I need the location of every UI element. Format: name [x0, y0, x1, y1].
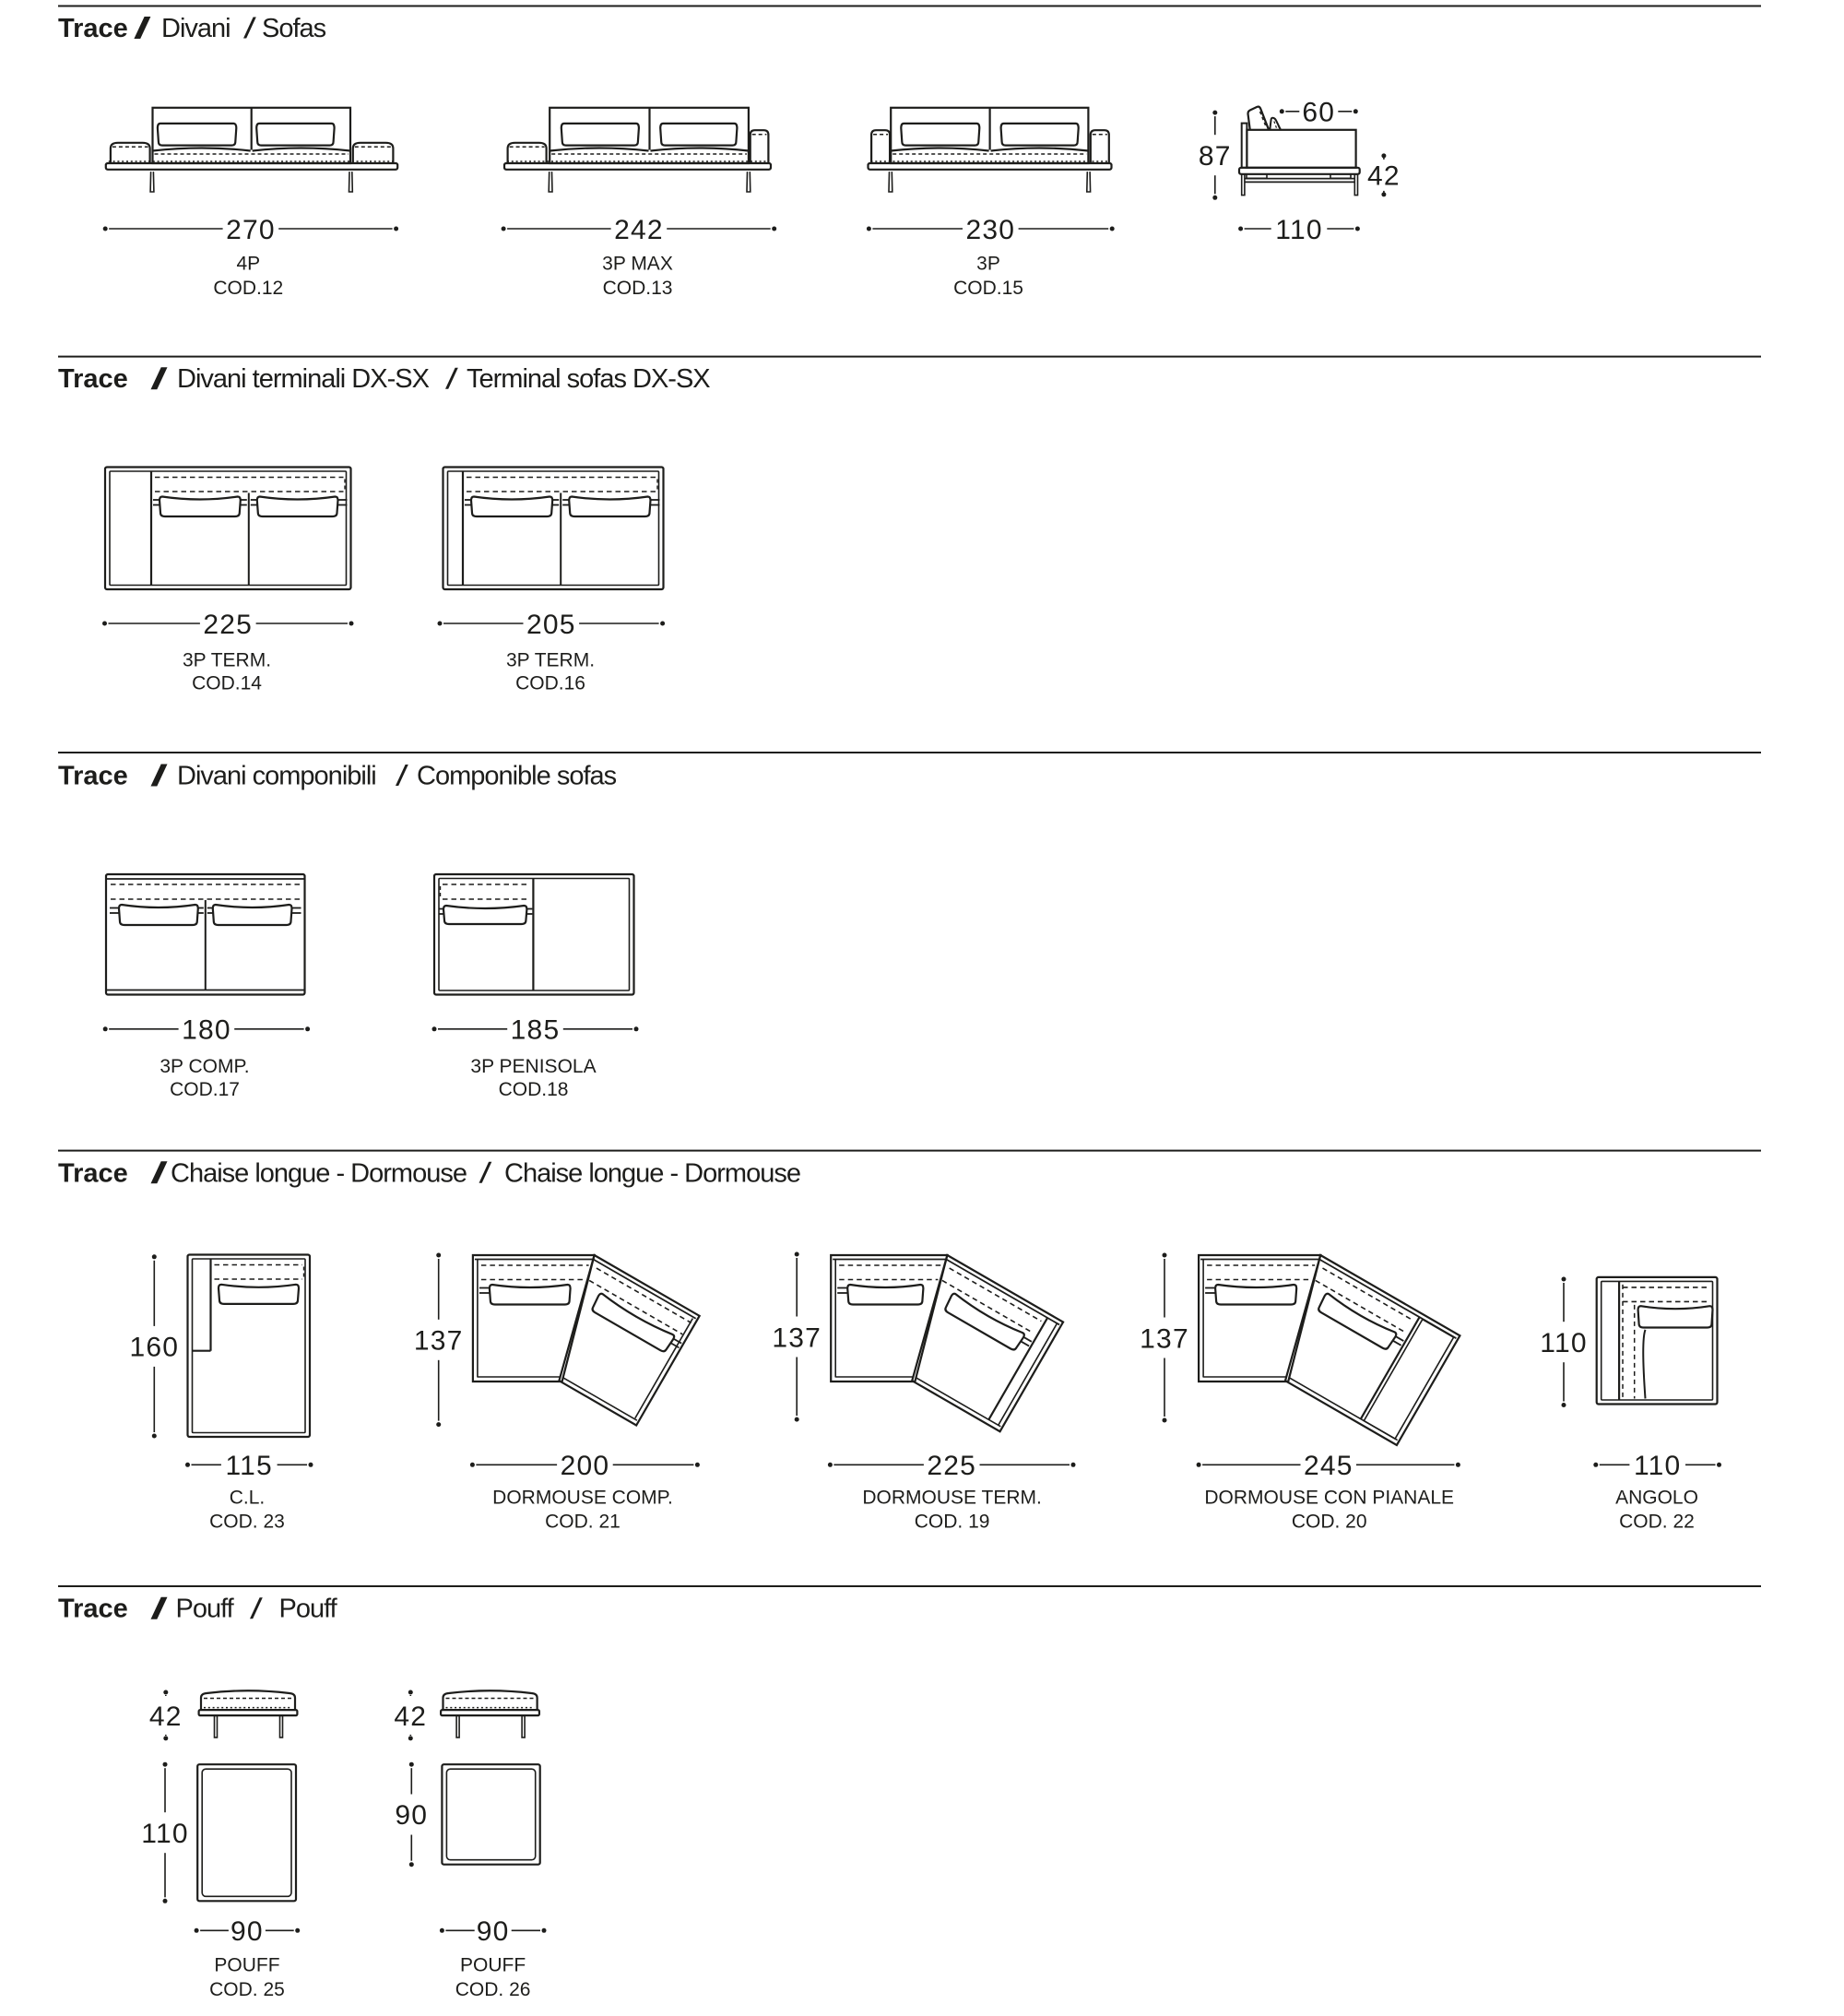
svg-text:110: 110 — [141, 1819, 188, 1849]
svg-text:Chaise longue - Dormouse: Chaise longue - Dormouse — [504, 1158, 800, 1188]
svg-text:Trace: Trace — [58, 1158, 128, 1188]
svg-text:Sofas: Sofas — [262, 14, 326, 43]
svg-text:COD.12: COD.12 — [213, 278, 283, 299]
svg-text:137: 137 — [772, 1322, 822, 1353]
svg-text:Divani componibili: Divani componibili — [177, 762, 376, 791]
svg-text:COD.13: COD.13 — [603, 278, 673, 299]
svg-text:42: 42 — [1367, 161, 1401, 192]
svg-text:200: 200 — [561, 1451, 610, 1481]
svg-text:230: 230 — [965, 215, 1015, 245]
svg-text:Trace: Trace — [58, 364, 128, 394]
svg-text:225: 225 — [203, 610, 253, 640]
svg-text:POUFF: POUFF — [214, 1955, 279, 1976]
svg-text:COD.18: COD.18 — [499, 1079, 569, 1100]
svg-text:COD. 21: COD. 21 — [545, 1512, 621, 1533]
svg-text:ANGOLO: ANGOLO — [1615, 1488, 1698, 1509]
svg-text:Chaise longue - Dormouse: Chaise longue - Dormouse — [171, 1158, 467, 1188]
svg-text:POUFF: POUFF — [460, 1955, 526, 1976]
svg-text:COD.14: COD.14 — [192, 673, 262, 694]
svg-text:180: 180 — [182, 1015, 231, 1046]
svg-text:COD.17: COD.17 — [170, 1079, 240, 1100]
svg-text:270: 270 — [226, 215, 276, 245]
svg-text:Terminal sofas DX-SX: Terminal sofas DX-SX — [467, 364, 710, 394]
svg-text:4P: 4P — [236, 253, 260, 274]
svg-text:Trace: Trace — [58, 14, 128, 43]
svg-text:3P MAX: 3P MAX — [602, 253, 673, 274]
svg-text:COD. 25: COD. 25 — [209, 1979, 285, 2000]
svg-text:COD. 22: COD. 22 — [1619, 1512, 1695, 1533]
svg-text:Pouff: Pouff — [279, 1595, 338, 1624]
svg-text:Componible sofas: Componible sofas — [417, 762, 617, 791]
svg-text:110: 110 — [1275, 215, 1322, 245]
svg-text:3P: 3P — [976, 253, 1000, 274]
svg-text:90: 90 — [477, 1916, 510, 1947]
svg-text:205: 205 — [526, 610, 576, 640]
svg-text:Divani: Divani — [161, 14, 230, 43]
svg-text:110: 110 — [1634, 1451, 1681, 1481]
svg-text:245: 245 — [1304, 1451, 1353, 1481]
svg-text:COD. 20: COD. 20 — [1292, 1512, 1367, 1533]
svg-text:225: 225 — [927, 1451, 976, 1481]
svg-text:DORMOUSE TERM.: DORMOUSE TERM. — [862, 1488, 1041, 1509]
svg-text:Trace: Trace — [58, 762, 128, 791]
svg-text:3P TERM.: 3P TERM. — [183, 650, 271, 671]
svg-text:Pouff: Pouff — [176, 1595, 235, 1624]
svg-text:137: 137 — [1140, 1323, 1189, 1354]
svg-text:Trace: Trace — [58, 1595, 128, 1624]
svg-text:COD. 23: COD. 23 — [209, 1512, 285, 1533]
svg-text:87: 87 — [1199, 141, 1232, 172]
svg-text:3P PENISOLA: 3P PENISOLA — [470, 1056, 596, 1077]
svg-text:90: 90 — [395, 1800, 428, 1831]
svg-text:COD. 19: COD. 19 — [915, 1512, 990, 1533]
svg-text:COD. 26: COD. 26 — [455, 1979, 531, 2000]
svg-text:60: 60 — [1302, 98, 1335, 128]
svg-text:DORMOUSE CON PIANALE: DORMOUSE CON PIANALE — [1204, 1488, 1454, 1509]
svg-text:3P COMP.: 3P COMP. — [160, 1056, 249, 1077]
svg-text:160: 160 — [129, 1333, 179, 1363]
svg-text:42: 42 — [149, 1702, 183, 1732]
svg-text:COD.16: COD.16 — [515, 673, 585, 694]
svg-text:42: 42 — [394, 1702, 427, 1732]
svg-text:185: 185 — [511, 1015, 561, 1046]
svg-text:3P TERM.: 3P TERM. — [506, 650, 595, 671]
svg-text:DORMOUSE COMP.: DORMOUSE COMP. — [492, 1488, 673, 1509]
svg-text:242: 242 — [614, 215, 664, 245]
svg-text:COD.15: COD.15 — [953, 278, 1023, 299]
svg-text:115: 115 — [225, 1451, 272, 1481]
svg-text:Divani terminali DX-SX: Divani terminali DX-SX — [177, 364, 430, 394]
svg-text:C.L.: C.L. — [230, 1488, 266, 1509]
svg-text:110: 110 — [1540, 1328, 1587, 1358]
svg-text:90: 90 — [230, 1916, 264, 1947]
svg-text:137: 137 — [414, 1326, 464, 1357]
